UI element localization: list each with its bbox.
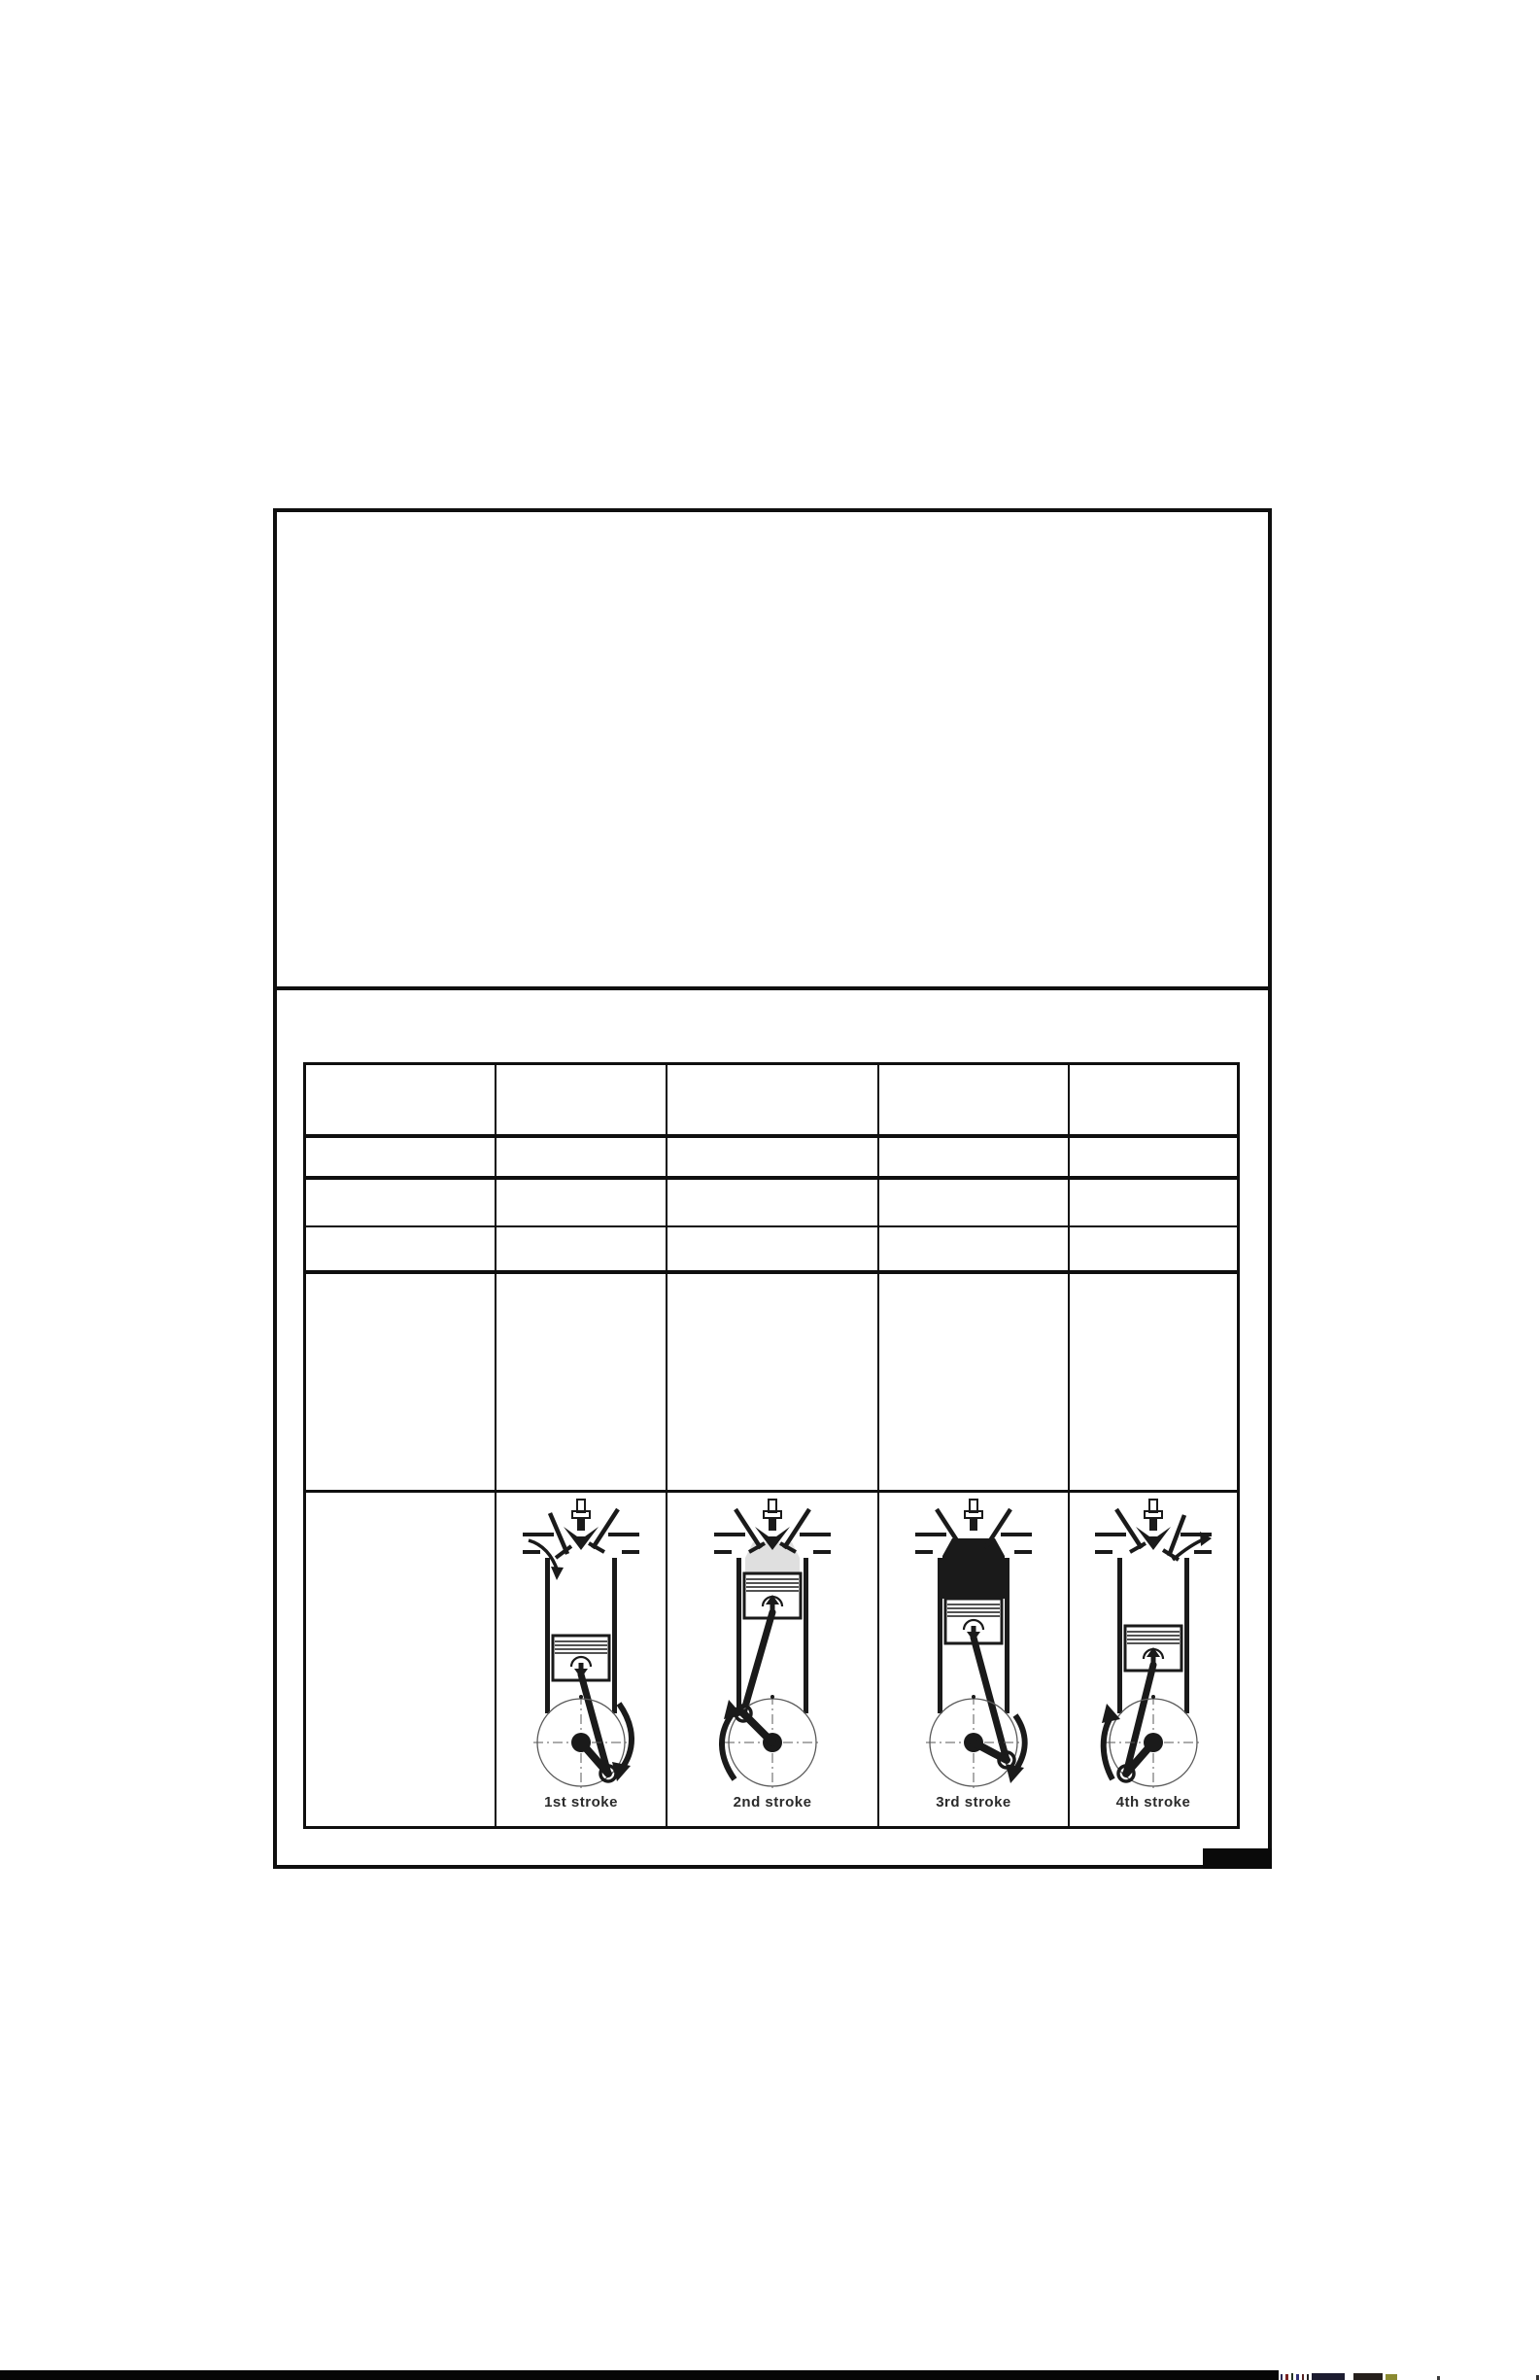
table-cell — [667, 1065, 879, 1138]
table-cell — [1070, 1180, 1237, 1227]
intake-stroke-diagram — [521, 1498, 641, 1794]
print-mark — [1307, 2374, 1309, 2380]
print-mark-block — [1353, 2373, 1383, 2380]
table-cell — [879, 1227, 1070, 1274]
power-stroke-diagram — [913, 1498, 1034, 1794]
print-mark — [1296, 2374, 1299, 2380]
table-cell — [306, 1227, 496, 1274]
table-cell — [496, 1065, 667, 1138]
stroke-diagram-cell-power: 3rd stroke — [879, 1493, 1070, 1826]
table-cell — [1070, 1138, 1237, 1180]
table-cell — [879, 1065, 1070, 1138]
stroke-label: 2nd stroke — [734, 1795, 812, 1811]
table-cell — [306, 1274, 496, 1493]
page-bottom-print-bar — [0, 2370, 1279, 2380]
print-mark-block — [1386, 2374, 1397, 2380]
table-cell — [667, 1227, 879, 1274]
table-cell — [306, 1138, 496, 1180]
table-cell — [667, 1180, 879, 1227]
table-cell — [306, 1493, 496, 1826]
table-cell — [1070, 1065, 1237, 1138]
stroke-diagram-cell-intake: 1st stroke — [496, 1493, 667, 1826]
print-registration-marks — [1281, 2373, 1400, 2380]
print-mark — [1291, 2373, 1293, 2380]
stroke-diagram-cell-compression: 2nd stroke — [667, 1493, 879, 1826]
stroke-label: 3rd stroke — [936, 1795, 1011, 1811]
edge-tick-mark — [1536, 2375, 1539, 2380]
stroke-label: 1st stroke — [544, 1795, 618, 1811]
frame-divider-line — [273, 986, 1272, 990]
table-cell — [879, 1274, 1070, 1493]
table-cell — [1070, 1274, 1237, 1493]
corner-black-mark — [1203, 1848, 1272, 1869]
table-cell — [306, 1180, 496, 1227]
table-cell — [879, 1180, 1070, 1227]
print-mark-block — [1312, 2373, 1345, 2380]
table-cell — [496, 1227, 667, 1274]
four-stroke-table: 1st stroke — [303, 1062, 1240, 1829]
table-cell — [496, 1274, 667, 1493]
table-cell — [667, 1138, 879, 1180]
table-cell — [306, 1065, 496, 1138]
table-cell — [879, 1138, 1070, 1180]
print-dot-mark — [1437, 2376, 1440, 2380]
print-mark — [1285, 2374, 1288, 2380]
scanned-page: 1st stroke — [0, 0, 1540, 2380]
stroke-diagram-cell-exhaust: 4th stroke — [1070, 1493, 1237, 1826]
print-mark — [1302, 2374, 1304, 2380]
table-cell — [1070, 1227, 1237, 1274]
compression-stroke-diagram — [712, 1498, 833, 1794]
table-cell — [496, 1180, 667, 1227]
stroke-label: 4th stroke — [1116, 1795, 1191, 1811]
exhaust-stroke-diagram — [1093, 1498, 1214, 1794]
print-mark — [1281, 2374, 1283, 2380]
table-cell — [667, 1274, 879, 1493]
table-cell — [496, 1138, 667, 1180]
